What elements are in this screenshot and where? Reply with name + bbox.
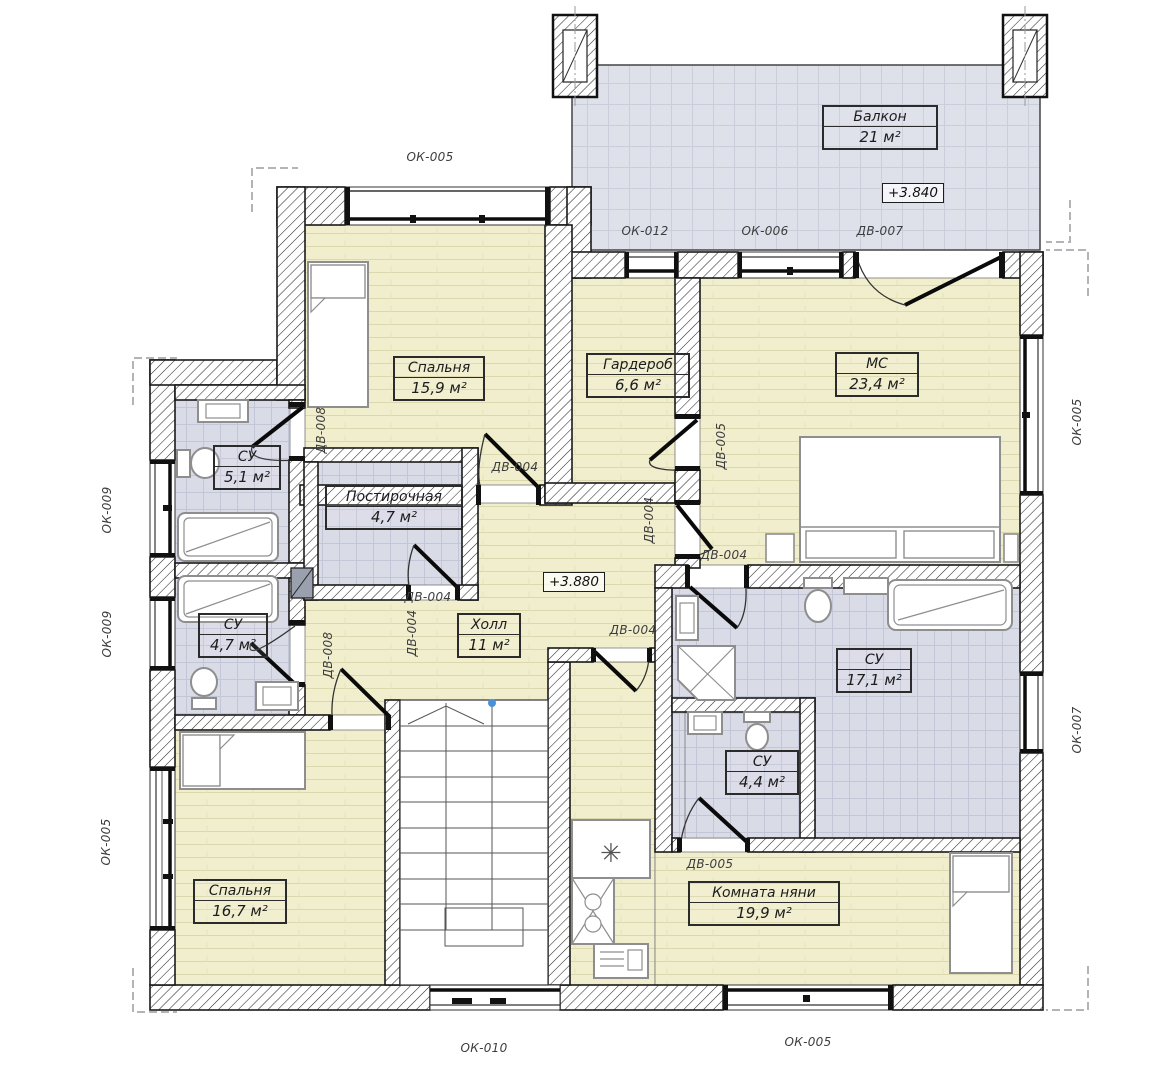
wall — [150, 930, 175, 985]
door-label-dv004-bedroom1: ДВ-004 — [492, 460, 539, 474]
window-ok006 — [738, 252, 843, 278]
door-label-dv008-b: ДВ-008 — [321, 632, 335, 679]
wall — [567, 252, 625, 278]
wall — [1020, 495, 1043, 672]
room-label-laundry: Постирочная 4,7 м² — [325, 485, 463, 530]
door-label-dv008-a: ДВ-008 — [314, 407, 328, 454]
window-ok005-bottom — [723, 985, 893, 1010]
balcony-column — [1003, 6, 1047, 106]
window-label-ok005-right: ОК-005 — [1070, 399, 1084, 446]
window-ok005-left — [150, 767, 175, 930]
svg-text:✳: ✳ — [600, 839, 622, 869]
window-ok005-top — [345, 187, 550, 225]
window-ok009-lower — [150, 597, 175, 670]
wall — [672, 698, 815, 712]
wall — [675, 470, 700, 503]
window-label-ok009-lower: ОК-009 — [100, 611, 114, 658]
room-label-bedroom2: Спальня 16,7 м² — [193, 879, 287, 924]
corner-bracket — [1046, 966, 1088, 1010]
wall — [277, 187, 305, 400]
bathtub-icon — [888, 580, 1012, 630]
wall — [304, 585, 408, 600]
corner-bracket — [1046, 250, 1088, 296]
room-label-bath171: СУ 17,1 м² — [836, 648, 912, 693]
door-label-dv005-wardrobe: ДВ-005 — [714, 423, 728, 470]
wall — [458, 585, 478, 600]
wall — [655, 565, 688, 588]
wall — [289, 460, 305, 563]
window-ok005-right — [1020, 335, 1043, 495]
elevation-marker-balcony: +3.840 — [882, 183, 944, 203]
wall — [748, 838, 1020, 852]
wall — [655, 588, 672, 852]
door-label-dv004-laundry: ДВ-004 — [405, 590, 452, 604]
wall — [150, 670, 175, 767]
room-label-nanny: Комната няни 19,9 м² — [688, 881, 840, 926]
stair-marker-dot — [488, 699, 496, 707]
window-label-ok005-bottom: ОК-005 — [785, 1035, 832, 1049]
sink-icon — [198, 400, 248, 422]
wall — [150, 557, 175, 597]
balcony-column — [553, 6, 597, 106]
nightstand-icon — [1004, 534, 1018, 562]
window-label-ok005-top: ОК-005 — [407, 150, 454, 164]
door-label-dv005-nanny: ДВ-005 — [687, 857, 734, 871]
window-label-ok012: ОК-012 — [622, 224, 669, 238]
wall — [462, 448, 478, 600]
door-label-dv004-hall: ДВ-004 — [610, 623, 657, 637]
wall — [150, 360, 277, 385]
window-ok009-upper — [150, 460, 175, 557]
door-label-dv004-master-w: ДВ-004 — [642, 497, 656, 544]
shelf-icon — [844, 578, 888, 594]
window-label-ok007-right: ОК-007 — [1070, 707, 1084, 754]
room-label-bath44: СУ 4,4 м² — [725, 750, 799, 795]
window-ok012 — [625, 252, 678, 278]
toilet-icon — [191, 668, 217, 709]
wall — [548, 662, 570, 985]
wall — [545, 225, 572, 503]
door-label-dv004-master: ДВ-004 — [701, 548, 748, 562]
elevation-marker-floor: +3.880 — [543, 572, 605, 592]
bathtub-icon — [178, 513, 278, 561]
door-label-dv004-laundry-v: ДВ-004 — [405, 610, 419, 657]
toilet-icon — [804, 578, 832, 622]
sink-icon — [688, 712, 722, 734]
balcony-slab — [572, 65, 1040, 250]
room-label-bath47: СУ 4,7 м² — [198, 613, 268, 658]
wall — [150, 985, 430, 1010]
room-label-hall: Холл 11 м² — [457, 613, 521, 658]
wall — [893, 985, 1043, 1010]
kitchen-sink-icon — [572, 878, 614, 944]
corner-bracket — [1046, 200, 1070, 242]
window-ok007-right — [1020, 672, 1043, 753]
nightstand-icon — [766, 534, 794, 562]
sink-icon — [676, 596, 698, 640]
wall — [800, 698, 815, 852]
washing-machine-icon — [594, 944, 648, 978]
wall — [678, 252, 738, 278]
wall — [304, 448, 478, 462]
wall — [560, 985, 723, 1010]
wall — [175, 715, 330, 730]
door-label-dv007: ДВ-007 — [857, 224, 904, 238]
room-label-master: МС 23,4 м² — [835, 352, 919, 397]
wall — [1020, 252, 1043, 335]
room-label-bedroom1: Спальня 15,9 м² — [393, 356, 485, 401]
toilet-icon — [744, 712, 770, 750]
bed-icon — [180, 732, 305, 789]
wall — [175, 385, 305, 400]
sink-icon — [256, 682, 298, 710]
window-label-ok005-left: ОК-005 — [99, 819, 113, 866]
room-label-bath51: СУ 5,1 м² — [213, 445, 281, 490]
window-label-ok009-upper: ОК-009 — [100, 487, 114, 534]
floor-plan-svg: ✳ — [0, 0, 1170, 1080]
bed-icon — [950, 853, 1012, 973]
wall — [1020, 753, 1043, 985]
bed-icon — [308, 262, 368, 407]
window-label-ok010-bottom: ОК-010 — [461, 1041, 508, 1055]
stove-icon: ✳ — [572, 820, 650, 878]
room-label-wardrobe: Гардероб 6,6 м² — [586, 353, 690, 398]
double-bed-icon — [766, 437, 1018, 562]
window-ok010-bottom — [430, 985, 560, 1010]
floor-plan-page: ✳ Балкон 21 м² Спальня 15,9 м² Гардероб … — [0, 0, 1170, 1080]
window-label-ok006: ОК-006 — [742, 224, 789, 238]
room-label-balcony: Балкон 21 м² — [822, 105, 938, 150]
wall — [385, 700, 400, 985]
stairs — [400, 699, 548, 985]
wall — [548, 648, 593, 662]
